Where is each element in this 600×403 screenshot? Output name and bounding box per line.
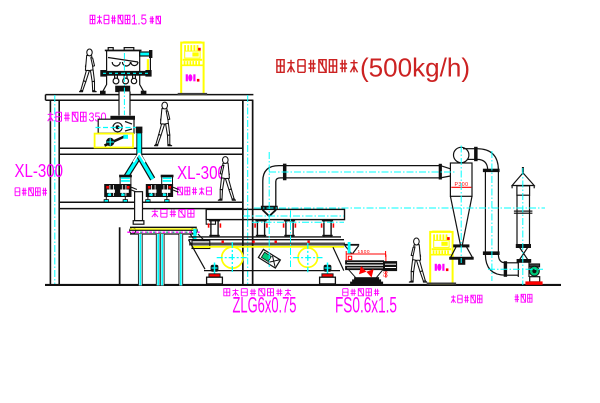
svg-text:1500: 1500 xyxy=(358,249,370,255)
svg-text:XL-300: XL-300 xyxy=(15,160,64,181)
svg-text:XL-300: XL-300 xyxy=(177,162,226,183)
svg-text:(500kg/h): (500kg/h) xyxy=(360,53,470,83)
svg-text:1.5: 1.5 xyxy=(131,13,147,29)
svg-text:FS0.6x1.5: FS0.6x1.5 xyxy=(335,293,397,318)
svg-text:ZLG6x0.75: ZLG6x0.75 xyxy=(233,293,297,318)
